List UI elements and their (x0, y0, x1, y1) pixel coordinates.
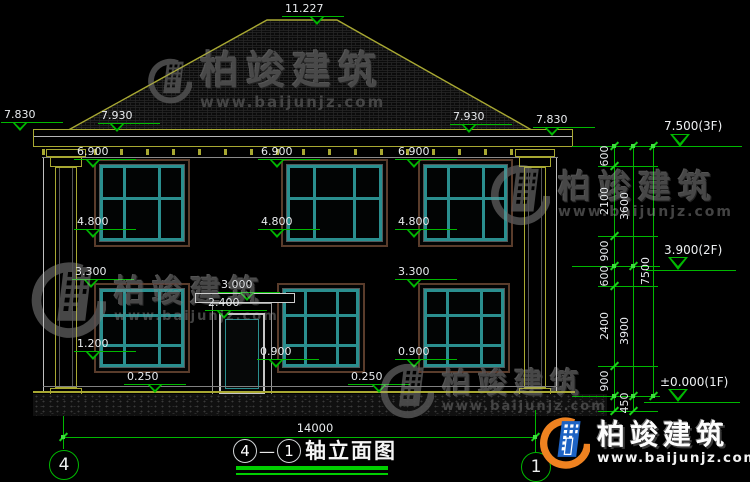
dim-node (533, 435, 537, 439)
elevation-triangle-icon (668, 257, 688, 270)
level-marker-eave-right: 7.830 (536, 114, 594, 126)
overall-dim-line (63, 437, 535, 438)
elevation-triangle-icon (12, 122, 28, 131)
dim-node (631, 144, 635, 148)
title-underline-thin (236, 473, 388, 475)
elevation-triangle-icon (461, 124, 477, 133)
level-marker-4800-3: 4.800 (398, 216, 456, 228)
level-marker-6900-2: 6.900 (261, 146, 319, 158)
elevation-triangle-icon (309, 16, 325, 25)
elevation-triangle-icon (269, 159, 285, 168)
level-marker-0900-2: 0.900 (398, 346, 456, 358)
floor-marker-2f: 3.900(2F) (664, 243, 722, 257)
level-marker-3300-2: 3.300 (398, 266, 456, 278)
floor-2f-marker-line (646, 270, 736, 271)
axis-bubble-4: 4 (49, 450, 79, 480)
level-marker-4800-2: 4.800 (261, 216, 319, 228)
title-axis-bubble-1: 1 (277, 439, 301, 463)
dim-value: 3900 (617, 301, 633, 361)
watermark-mid-left: 柏竣建筑 www.baijunjz.com (28, 256, 279, 344)
elevation-triangle-icon (85, 351, 101, 360)
pilaster-right-capital (515, 149, 555, 157)
level-marker-roof-right: 7.930 (453, 111, 511, 123)
brand-name: 柏竣建筑 (597, 420, 750, 449)
elevation-triangle-icon (147, 384, 163, 393)
dim-node (651, 144, 655, 148)
elevation-triangle-icon (109, 123, 125, 132)
title-dash: — (259, 442, 275, 461)
level-marker-0900-1: 0.900 (260, 346, 318, 358)
dim-node (631, 264, 635, 268)
axis-ext-left (63, 416, 64, 449)
floor-1f-marker-line (644, 402, 740, 403)
watermark-top: 柏竣建筑 www.baijunjz.com (146, 52, 385, 111)
level-marker-4800-1: 4.800 (77, 216, 135, 228)
dim-value: 7500 (638, 241, 654, 301)
elevation-triangle-icon (406, 279, 422, 288)
elevation-triangle-icon (406, 229, 422, 238)
level-marker-eave-left: 7.830 (4, 109, 62, 121)
floor-marker-3f: 7.500(3F) (664, 119, 722, 133)
elevation-triangle-icon (668, 389, 688, 402)
brand-url: www.baijunjz.com (597, 450, 750, 466)
window-2f-middle (281, 159, 388, 247)
watermark-mid-right: 柏竣建筑 www.baijunjz.com (488, 160, 733, 230)
elevation-triangle-icon (269, 229, 285, 238)
dim-node (61, 435, 65, 439)
title-underline-thick (236, 466, 388, 470)
elevation-triangle-icon (85, 229, 101, 238)
baijun-logo-icon (146, 54, 192, 108)
eave-inner-line (34, 136, 572, 137)
floor-marker-1f: ±0.000(1F) (660, 375, 728, 389)
level-marker-6900-1: 6.900 (77, 146, 135, 158)
level-marker-0250-1: 0.250 (127, 371, 185, 383)
title-text: 轴立面图 (305, 439, 397, 463)
baijun-logo-color-icon (538, 413, 590, 473)
dim-value: 2400 (597, 296, 613, 356)
elevation-triangle-icon (406, 159, 422, 168)
elevation-triangle-icon (268, 359, 284, 368)
brand-logo-block: 柏竣建筑 www.baijunjz.com (538, 413, 750, 473)
window-2f-left (94, 159, 190, 247)
level-marker-roof-left: 7.930 (101, 110, 159, 122)
title-axis-bubble-4: 4 (233, 439, 257, 463)
elevation-triangle-icon (85, 159, 101, 168)
baijun-logo-icon (488, 160, 550, 230)
dim-node (651, 394, 655, 398)
elevation-triangle-icon (544, 127, 560, 136)
overall-dim-value: 14000 (271, 421, 359, 435)
drawing-title: 4 — 1 轴立面图 (233, 439, 397, 463)
baijun-logo-icon (378, 360, 434, 422)
level-marker-ridge: 11.227 (285, 3, 343, 15)
level-value: 11.227 (285, 3, 343, 15)
level-marker-6900-3: 6.900 (398, 146, 456, 158)
elevation-drawing-canvas: 11.227 7.830 7.930 7.930 7.830 6.900 6.9… (0, 0, 750, 482)
baijun-logo-icon (28, 256, 106, 344)
